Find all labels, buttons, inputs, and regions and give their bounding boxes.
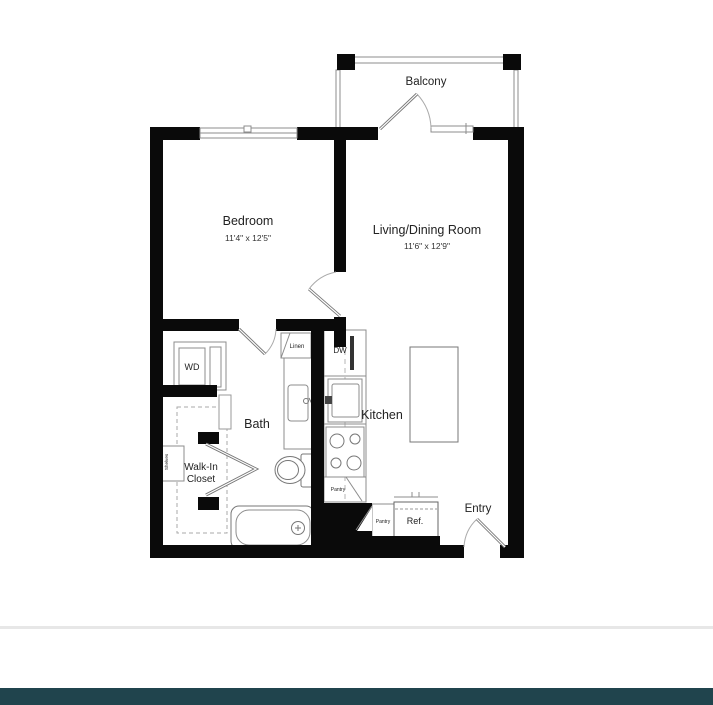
bathtub <box>231 506 314 549</box>
floor-plan: Balcony Bedroom 11'4" x 12'5" Living/Din… <box>0 0 713 630</box>
closet-door-jamb <box>219 395 231 429</box>
wall-bifold-stub-top <box>198 432 219 444</box>
refrigerator-unit <box>394 492 438 537</box>
washer-dryer-label: WD <box>185 362 200 372</box>
entry-pantry-label: Pantry <box>376 519 391 525</box>
balcony-post-right <box>503 54 521 70</box>
kitchen-island <box>410 347 458 442</box>
wall-bifold-stub-bottom <box>198 497 219 510</box>
balcony-door <box>380 94 431 129</box>
kitchen-counter <box>324 330 366 502</box>
shelves-label: Shelves <box>164 453 169 470</box>
wall-left <box>150 127 163 558</box>
bath-label: Bath <box>244 417 270 431</box>
wall-right <box>508 127 524 558</box>
living-window <box>431 123 473 134</box>
bath-door <box>239 329 276 354</box>
footer-bar <box>0 688 713 705</box>
entry-door <box>464 519 505 547</box>
floor-plan-page: Balcony Bedroom 11'4" x 12'5" Living/Din… <box>0 0 713 705</box>
living-dining-label: Living/Dining Room <box>373 223 481 237</box>
entry-label: Entry <box>465 503 492 515</box>
bedroom-label: Bedroom <box>223 214 274 228</box>
balcony-post-left <box>337 54 355 70</box>
balcony-structure <box>336 54 521 128</box>
kitchen-pantry-label: Pantry <box>331 487 346 493</box>
bath-vanity <box>284 358 312 449</box>
wall-top-left <box>150 127 200 140</box>
bedroom-door <box>309 272 340 316</box>
wall-bedroom-living <box>334 133 346 272</box>
toilet <box>275 454 314 487</box>
wall-closet-top <box>150 385 217 397</box>
kitchen-faucet-icon <box>325 396 332 404</box>
living-dining-dims: 11'6" x 12'9" <box>404 241 450 251</box>
kitchen-label: Kitchen <box>361 408 403 422</box>
washer-dryer-unit <box>174 342 226 390</box>
stove <box>326 427 364 477</box>
walk-in-closet-label-line2: Closet <box>187 474 216 485</box>
refrigerator-label: Ref. <box>407 516 424 526</box>
dishwasher-label: DW <box>333 346 347 355</box>
linen-label: Linen <box>290 344 305 350</box>
section-divider <box>0 626 713 629</box>
balcony-label: Balcony <box>406 76 447 88</box>
wall-entry-step <box>372 536 440 558</box>
walk-in-closet-label-line1: Walk-In <box>184 462 218 473</box>
bedroom-dims: 11'4" x 12'5" <box>225 233 271 243</box>
kitchen-sink <box>325 379 362 422</box>
dishwasher-door <box>350 336 354 370</box>
wall-bath-kitchen <box>311 325 324 505</box>
wall-bedroom-bottom-left <box>150 319 239 331</box>
bedroom-window <box>200 126 297 138</box>
